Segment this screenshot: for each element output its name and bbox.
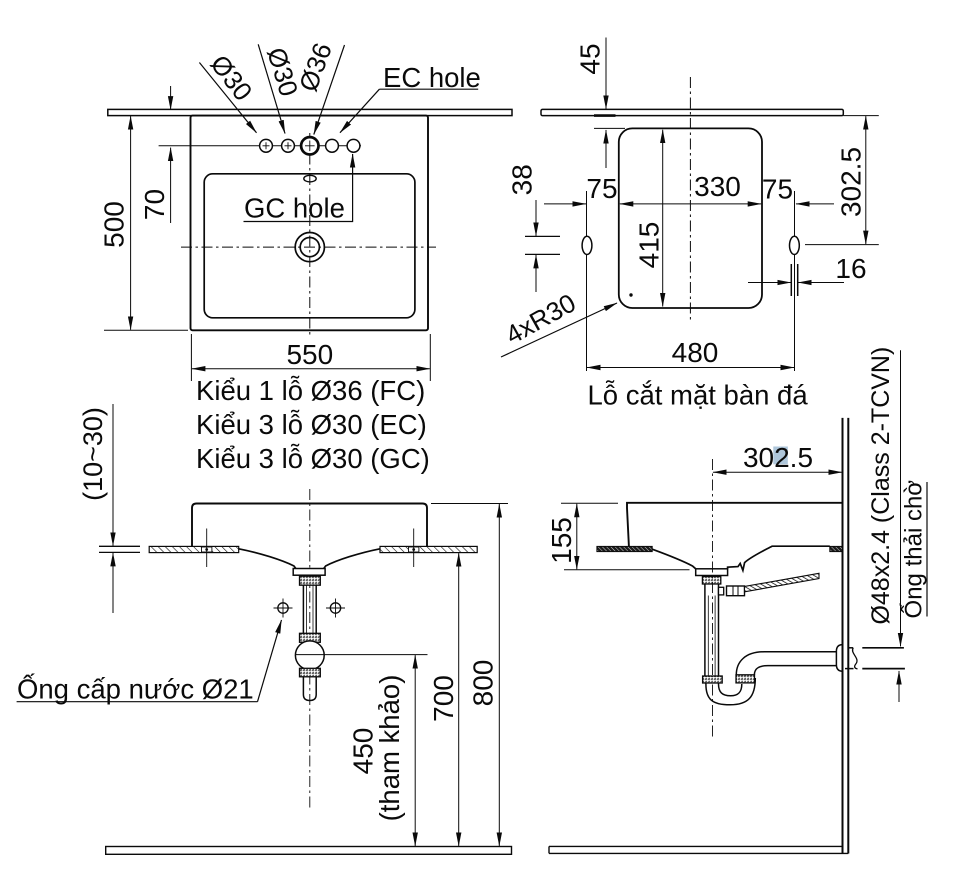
svg-text:330: 330 bbox=[694, 171, 741, 202]
svg-text:38: 38 bbox=[507, 164, 538, 195]
svg-text:Ø48x2.4 (Class 2-TCVN): Ø48x2.4 (Class 2-TCVN) bbox=[867, 347, 895, 625]
svg-text:Ống thải chờ: Ống thải chờ bbox=[899, 480, 927, 619]
svg-text:75: 75 bbox=[586, 173, 617, 204]
svg-text:Kiểu 3 lỗ Ø30 (EC): Kiểu 3 lỗ Ø30 (EC) bbox=[196, 409, 427, 440]
svg-text:Kiểu 3 lỗ Ø30 (GC): Kiểu 3 lỗ Ø30 (GC) bbox=[196, 443, 430, 474]
svg-text:45: 45 bbox=[575, 43, 606, 74]
svg-text:EC hole: EC hole bbox=[383, 62, 481, 93]
svg-text:70: 70 bbox=[139, 189, 170, 220]
svg-text:500: 500 bbox=[99, 201, 130, 248]
svg-text:700: 700 bbox=[428, 675, 459, 722]
svg-text:Lỗ cắt mặt bàn đá: Lỗ cắt mặt bàn đá bbox=[588, 380, 809, 411]
svg-text:Kiểu 1 lỗ Ø36 (FC): Kiểu 1 lỗ Ø36 (FC) bbox=[196, 375, 425, 406]
svg-text:302.5: 302.5 bbox=[743, 442, 813, 473]
svg-text:302.5: 302.5 bbox=[835, 147, 866, 217]
svg-text:75: 75 bbox=[762, 174, 793, 205]
svg-text:480: 480 bbox=[672, 337, 719, 368]
svg-text:Ống cấp nước Ø21: Ống cấp nước Ø21 bbox=[17, 673, 254, 705]
svg-text:16: 16 bbox=[835, 253, 866, 284]
svg-text:(tham khảo): (tham khảo) bbox=[374, 675, 405, 822]
svg-text:(10~30): (10~30) bbox=[78, 407, 108, 501]
svg-text:550: 550 bbox=[286, 339, 333, 370]
svg-text:800: 800 bbox=[468, 660, 499, 707]
svg-text:155: 155 bbox=[546, 517, 577, 564]
svg-text:415: 415 bbox=[634, 222, 665, 269]
svg-text:GC hole: GC hole bbox=[244, 193, 345, 224]
